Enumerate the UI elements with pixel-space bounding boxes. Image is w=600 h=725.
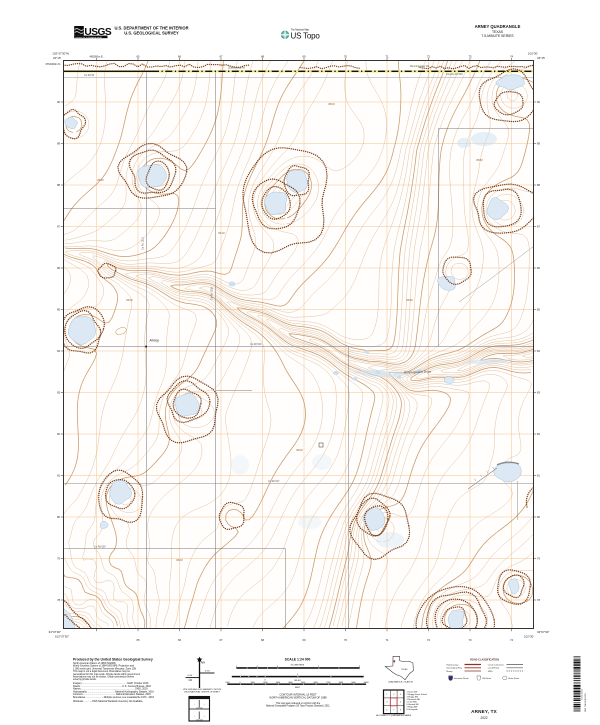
svg-text:8000: 8000	[339, 682, 343, 684]
svg-text:Arney: Arney	[150, 339, 160, 343]
svg-text:Interstate Route: Interstate Route	[454, 677, 470, 680]
svg-text:1000: 1000	[251, 682, 255, 684]
svg-text:74: 74	[510, 638, 513, 642]
svg-text:102°30': 102°30'	[524, 635, 534, 639]
svg-text:1000: 1000	[225, 682, 229, 684]
svg-text:NSN. 7643014675433: NSN. 7643014675433	[585, 693, 587, 712]
svg-text:MN: MN	[201, 661, 205, 664]
svg-text:69: 69	[303, 638, 306, 642]
svg-text:Co Rd 617: Co Rd 617	[268, 480, 280, 483]
svg-text:National Geospatial Program US: National Geospatial Program US Topo Prod…	[266, 705, 331, 708]
svg-text:County Rd 516: County Rd 516	[446, 73, 463, 76]
svg-text:34°07'30": 34°07'30"	[537, 630, 549, 634]
svg-text:ADJOINING 7.5' QUADRANGLE NAME: ADJOINING 7.5' QUADRANGLE NAMES	[376, 714, 412, 717]
svg-text:67: 67	[220, 638, 223, 642]
svg-text:3600: 3600	[328, 102, 335, 106]
svg-text:Co Rd 1055: Co Rd 1055	[211, 287, 214, 300]
svg-text:GN: GN	[189, 679, 193, 682]
svg-text:34°07'30": 34°07'30"	[49, 630, 61, 634]
svg-text:3580: 3580	[476, 158, 483, 162]
svg-text:0°44': 0°44'	[188, 675, 194, 677]
svg-text:1:24 000: 1:24 000	[196, 707, 202, 709]
svg-text:7000: 7000	[326, 682, 330, 684]
svg-text:Local Connector: Local Connector	[488, 663, 504, 666]
svg-text:8 Sunnyside: 8 Sunnyside	[407, 709, 419, 711]
svg-text:72: 72	[427, 638, 430, 642]
svg-text:3620: 3620	[176, 558, 183, 562]
svg-text:3791000m N.: 3791000m N.	[45, 62, 61, 66]
svg-text:70: 70	[344, 638, 347, 642]
svg-text:66: 66	[178, 638, 181, 642]
svg-text:3600: 3600	[296, 448, 303, 452]
svg-text:Co Rd 629: Co Rd 629	[94, 545, 106, 548]
svg-text:TEXAS: TEXAS	[492, 30, 504, 34]
svg-text:3620: 3620	[126, 298, 133, 302]
svg-text:102°30': 102°30'	[528, 52, 538, 56]
svg-text:71: 71	[386, 638, 389, 642]
svg-text:SCALE 1:24 000: SCALE 1:24 000	[285, 658, 311, 662]
svg-text:34°15': 34°15'	[537, 56, 546, 60]
svg-text:Co Rd 1513: Co Rd 1513	[142, 237, 145, 250]
svg-text:102°37'30": 102°37'30"	[55, 635, 69, 639]
svg-text:TEXAS: TEXAS	[401, 668, 408, 671]
svg-text:2000: 2000	[263, 682, 267, 684]
svg-text:This map was produced to confo: This map was produced to conform with th…	[276, 702, 321, 705]
svg-text:KILOMETERS: KILOMETERS	[291, 664, 305, 666]
svg-text:3-7645-5433-1: 3-7645-5433-1	[581, 689, 583, 700]
svg-text:2022: 2022	[480, 716, 487, 720]
svg-text:9000: 9000	[351, 682, 355, 684]
svg-text:science for a changing world: science for a changing world	[75, 36, 102, 39]
svg-text:65: 65	[137, 638, 140, 642]
svg-text:4°16': 4°16'	[205, 671, 211, 673]
svg-text:4000: 4000	[288, 682, 292, 684]
svg-text:entering private lands.: entering private lands.	[73, 678, 97, 681]
svg-text:34°15': 34°15'	[53, 56, 62, 60]
svg-text:Co Rd 95: Co Rd 95	[84, 74, 95, 77]
svg-text:73: 73	[469, 638, 472, 642]
svg-text:3590: 3590	[406, 298, 413, 302]
svg-text:Expressway: Expressway	[447, 663, 460, 666]
svg-text:Ramp: Ramp	[447, 671, 454, 673]
svg-text:DECLINATION AT CENTER OF SHEET: DECLINATION AT CENTER OF SHEET	[184, 690, 220, 693]
svg-text:0: 0	[240, 682, 241, 684]
svg-text:6 Dimmitt NE: 6 Dimmitt NE	[407, 703, 420, 706]
svg-text:ROAD CLASSIFICATION: ROAD CLASSIFICATION	[470, 658, 499, 661]
svg-text:3610: 3610	[218, 231, 225, 235]
svg-text:1:100 000: 1:100 000	[196, 719, 203, 721]
svg-text:Wetlands..............FWS Nati: Wetlands..............FWS National Wetla…	[73, 700, 143, 703]
svg-text:Secondary Hwy: Secondary Hwy	[447, 667, 463, 670]
svg-text:Runningwater Rd: Runningwater Rd	[410, 65, 430, 68]
svg-text:US Route: US Route	[482, 677, 492, 680]
svg-text:3000: 3000	[276, 682, 280, 684]
svg-text:102°37'30"W: 102°37'30"W	[52, 52, 69, 56]
svg-text:FEET: FEET	[295, 687, 301, 689]
svg-text:US Topo: US Topo	[291, 32, 321, 41]
svg-text:U.S. GEOLOGICAL SURVEY: U.S. GEOLOGICAL SURVEY	[124, 31, 179, 36]
svg-text:Quarterway Rd: Quarterway Rd	[228, 66, 245, 69]
svg-text:State Route: State Route	[508, 677, 520, 680]
svg-text:Boundaries....................: Boundaries............................Mu…	[73, 696, 155, 699]
svg-text:3630: 3630	[97, 178, 104, 182]
svg-text:68: 68	[261, 638, 264, 642]
svg-text:ARNEY QUADRANGLE: ARNEY QUADRANGLE	[475, 24, 521, 29]
svg-text:4WD: 4WD	[488, 671, 493, 673]
svg-text:10000: 10000	[363, 682, 368, 684]
svg-text:QUADRANGLE LOCATION: QUADRANGLE LOCATION	[388, 681, 413, 684]
svg-text:7.5-MINUTE SERIES: 7.5-MINUTE SERIES	[481, 34, 514, 38]
svg-text:5000: 5000	[301, 682, 305, 684]
svg-text:NORTH AMERICAN VERTICAL DATUM: NORTH AMERICAN VERTICAL DATUM OF 1988	[269, 695, 327, 699]
svg-text:Co Rd 516: Co Rd 516	[250, 343, 262, 346]
svg-text:Local Road: Local Road	[488, 668, 500, 670]
svg-text:6000: 6000	[314, 682, 318, 684]
svg-text:ARNEY, TX: ARNEY, TX	[471, 709, 498, 714]
svg-text:4 Nazareth NE: 4 Nazareth NE	[407, 698, 421, 701]
